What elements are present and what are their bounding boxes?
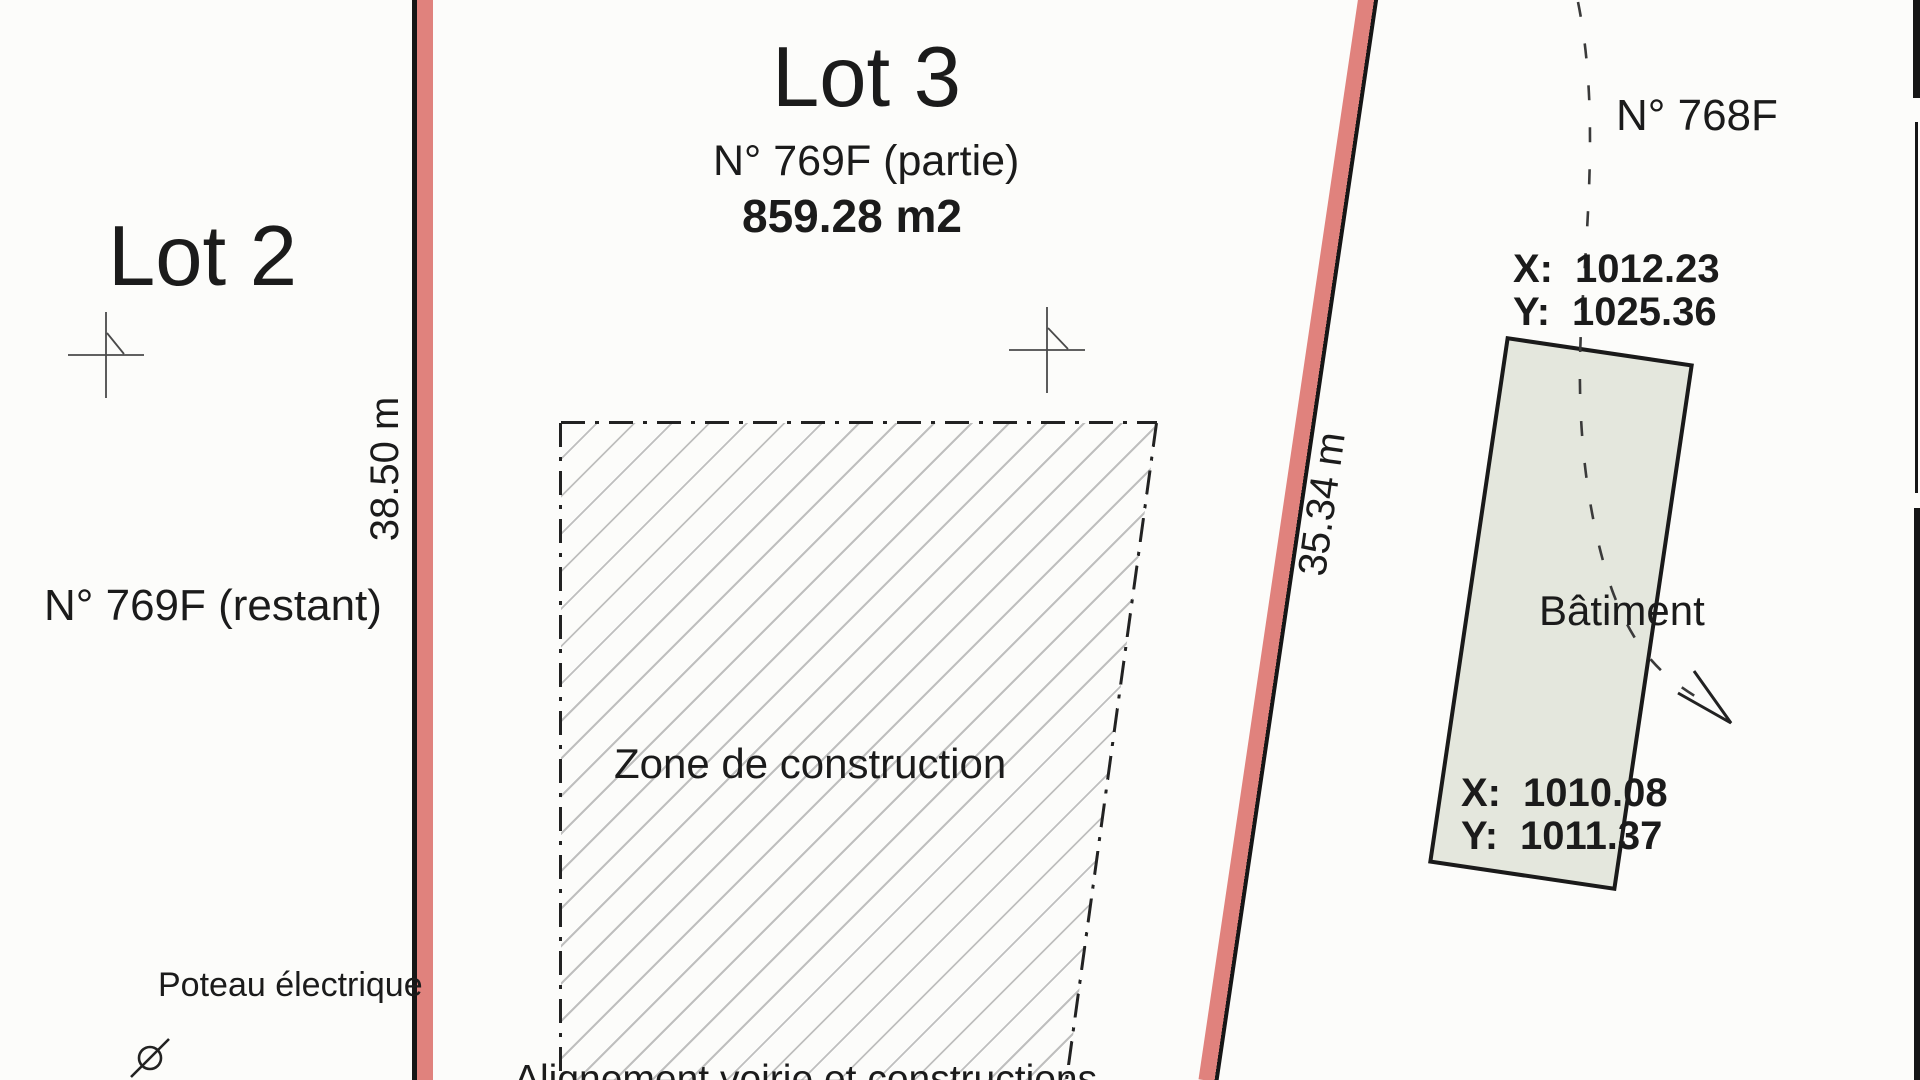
coordinate-row: X: 1010.08 <box>1461 772 1668 815</box>
lot2-title: Lot 2 <box>108 212 297 301</box>
boundary-line-right <box>1199 0 1379 1080</box>
coordinate-label: Y: <box>1513 291 1550 334</box>
remaining-parcel-number: N° 769F (restant) <box>44 583 382 629</box>
construction-zone-label: Zone de construction <box>614 742 1006 786</box>
direction-arrow-icon <box>1678 671 1731 723</box>
left-boundary-dimension: 38.50 m <box>364 359 406 579</box>
lot3-parcel-number: N° 769F (partie) <box>713 139 1019 184</box>
cadastral-division-plan: Lot 2 Lot 3 N° 769F (partie) 859.28 m2 N… <box>0 0 1920 1080</box>
scan-edge-artifact <box>1913 0 1920 98</box>
coordinate-value: 1025.36 <box>1572 291 1717 334</box>
neighbor-parcel-number: N° 768F <box>1616 93 1778 139</box>
coordinate-label: Y: <box>1461 815 1498 858</box>
coordinate-value: 1012.23 <box>1575 248 1720 291</box>
coordinate-row: X: 1012.23 <box>1513 248 1720 291</box>
survey-cross-icon <box>1009 307 1085 393</box>
coordinate-row: Y: 1025.36 <box>1513 291 1720 334</box>
building-label: Bâtiment <box>1539 589 1705 633</box>
construction-zone-left-edge <box>559 423 562 1080</box>
lot3-title: Lot 3 <box>772 33 961 122</box>
electric-pole-label: Poteau électrique <box>158 968 423 1004</box>
building-top-corner-coordinates: X: 1012.23 Y: 1025.36 <box>1513 248 1720 334</box>
boundary-line-left <box>412 0 433 1080</box>
scan-edge-artifact <box>1915 122 1918 493</box>
coordinate-label: X: <box>1461 772 1501 815</box>
alignment-label: Alignement voirie et constructions <box>514 1060 1097 1080</box>
coordinate-label: X: <box>1513 248 1553 291</box>
coordinate-value: 1011.37 <box>1520 815 1662 858</box>
scan-edge-artifact <box>1914 508 1920 1080</box>
lot3-area: 859.28 m2 <box>742 192 962 240</box>
electric-pole-icon <box>131 1039 169 1077</box>
building-bottom-corner-coordinates: X: 1010.08 Y: 1011.37 <box>1461 772 1668 858</box>
survey-cross-icon <box>68 312 144 398</box>
construction-zone-top-edge <box>561 421 1157 424</box>
coordinate-row: Y: 1011.37 <box>1461 815 1668 858</box>
coordinate-value: 1010.08 <box>1523 772 1668 815</box>
